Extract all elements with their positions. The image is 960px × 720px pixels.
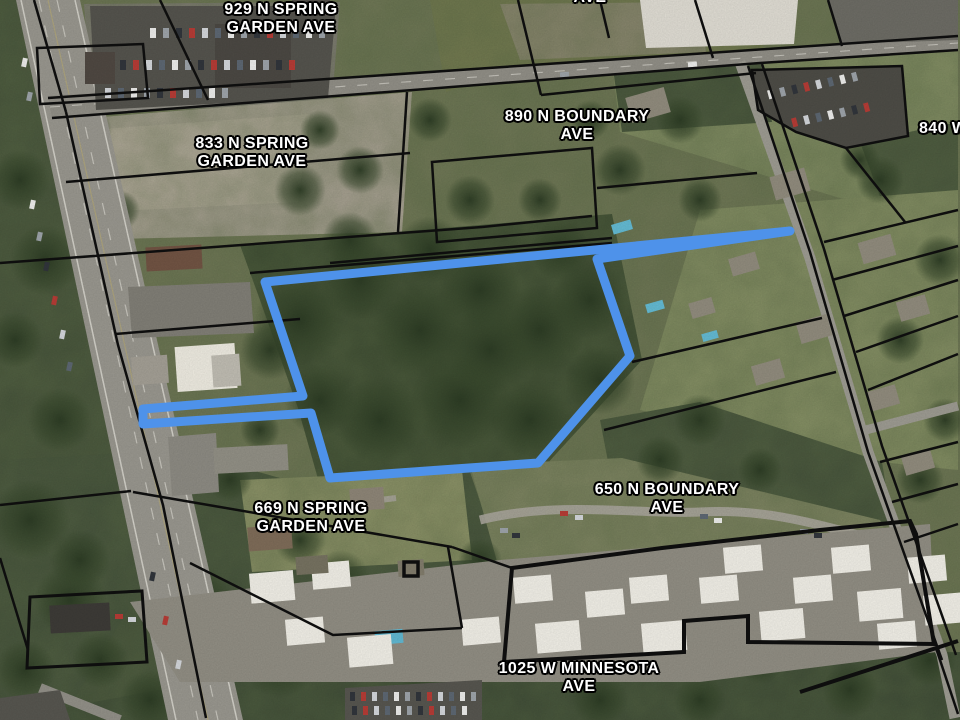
parcel-label-650: 650 N BOUNDARYAVE [595,481,740,516]
map-canvas[interactable] [0,0,960,720]
parcel-label-840: 840 W [919,120,960,138]
parcel-label-ave-top: AVE [574,0,607,7]
parcel-label-890: 890 N BOUNDARYAVE [505,108,650,143]
aerial-map[interactable]: 929 N SPRINGGARDEN AVE AVE 833 N SPRINGG… [0,0,960,720]
parcel-label-669: 669 N SPRINGGARDEN AVE [254,500,367,535]
parcel-label-833: 833 N SPRINGGARDEN AVE [195,135,308,170]
parcel-label-1025: 1025 W MINNESOTAAVE [499,660,660,695]
parcel-label-929: 929 N SPRINGGARDEN AVE [224,1,337,36]
